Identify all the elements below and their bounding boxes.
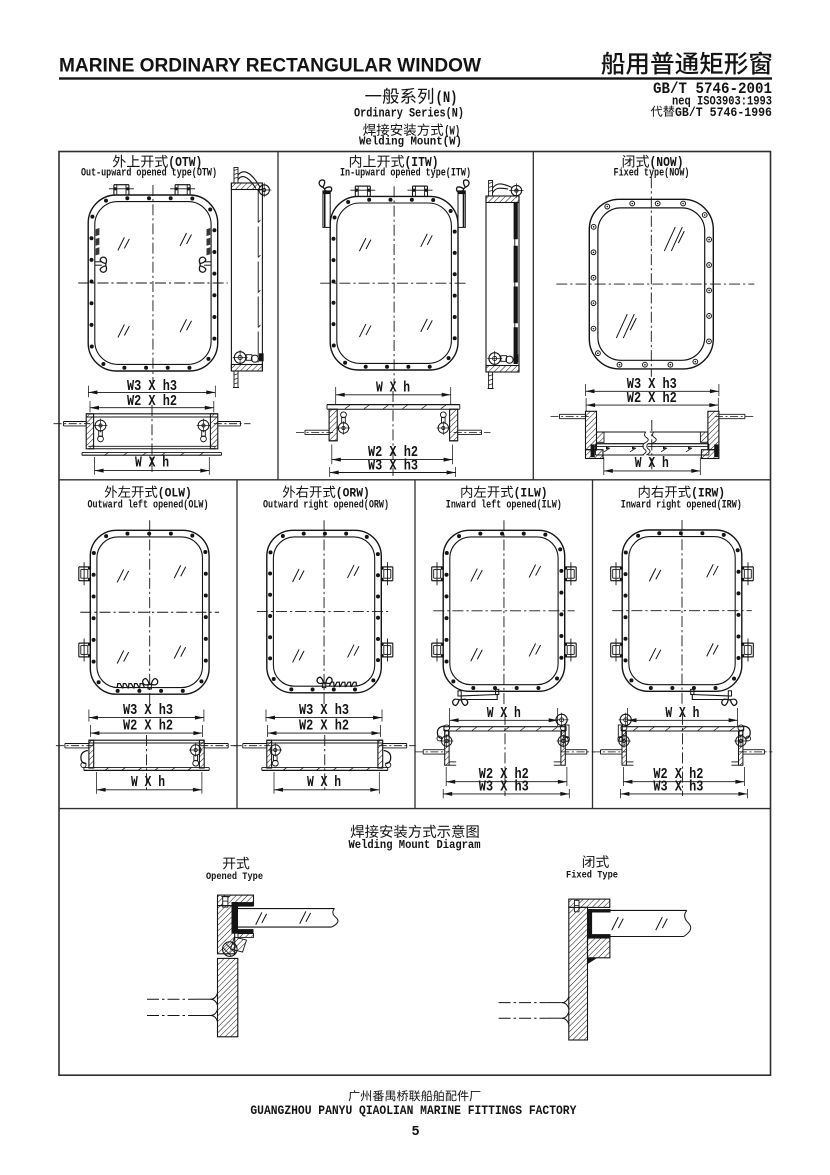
- svg-text:(ORW): (ORW): [336, 486, 370, 501]
- svg-text:5: 5: [411, 1125, 419, 1140]
- svg-text:Fixed Type: Fixed Type: [566, 870, 618, 882]
- svg-text:MARINE ORDINARY RECTANGULAR WI: MARINE ORDINARY RECTANGULAR WINDOW: [59, 55, 482, 77]
- svg-text:W2 X h2: W2 X h2: [299, 719, 349, 735]
- svg-text:W2 X h2: W2 X h2: [123, 719, 173, 735]
- svg-text:Inward left opened(ILW): Inward left opened(ILW): [446, 499, 562, 511]
- svg-text:(OLW): (OLW): [158, 486, 192, 501]
- svg-text:W3 X h3: W3 X h3: [123, 703, 173, 719]
- svg-text:(ILW): (ILW): [514, 486, 548, 501]
- svg-text:Welding Mount(W): Welding Mount(W): [359, 135, 462, 149]
- svg-text:Ordinary Series(N): Ordinary Series(N): [354, 105, 464, 120]
- svg-text:W3 X h3: W3 X h3: [299, 703, 349, 719]
- svg-text:Outward left opened(OLW): Outward left opened(OLW): [88, 499, 209, 511]
- svg-text:Opened Type: Opened Type: [206, 871, 263, 883]
- svg-text:W3 X h3: W3 X h3: [653, 779, 703, 795]
- svg-text:Out-upward opened type(OTW): Out-upward opened type(OTW): [81, 168, 217, 180]
- svg-text:W X h: W X h: [135, 455, 169, 471]
- svg-text:Welding Mount Diagram: Welding Mount Diagram: [349, 838, 481, 852]
- svg-text:Outward right opened(ORW): Outward right opened(ORW): [263, 499, 389, 511]
- svg-text:W X h: W X h: [307, 775, 341, 791]
- svg-text:Inward right opened(IRW): Inward right opened(IRW): [621, 499, 742, 511]
- svg-text:W X h: W X h: [635, 456, 669, 472]
- svg-text:(N): (N): [436, 89, 458, 107]
- svg-text:(IRW): (IRW): [691, 486, 725, 501]
- svg-text:W X h: W X h: [487, 706, 521, 722]
- svg-text:W2 X h2: W2 X h2: [627, 391, 677, 407]
- svg-text:GUANGZHOU PANYU QIAOLIAN MARIN: GUANGZHOU PANYU QIAOLIAN MARINE FITTINGS…: [250, 1104, 576, 1118]
- svg-text:W3 X h3: W3 X h3: [479, 779, 529, 795]
- svg-text:GB/T 5746-1996: GB/T 5746-1996: [675, 106, 772, 120]
- svg-text:W X h: W X h: [131, 775, 165, 791]
- svg-text:In-upward opened type(ITW): In-upward opened type(ITW): [340, 168, 471, 180]
